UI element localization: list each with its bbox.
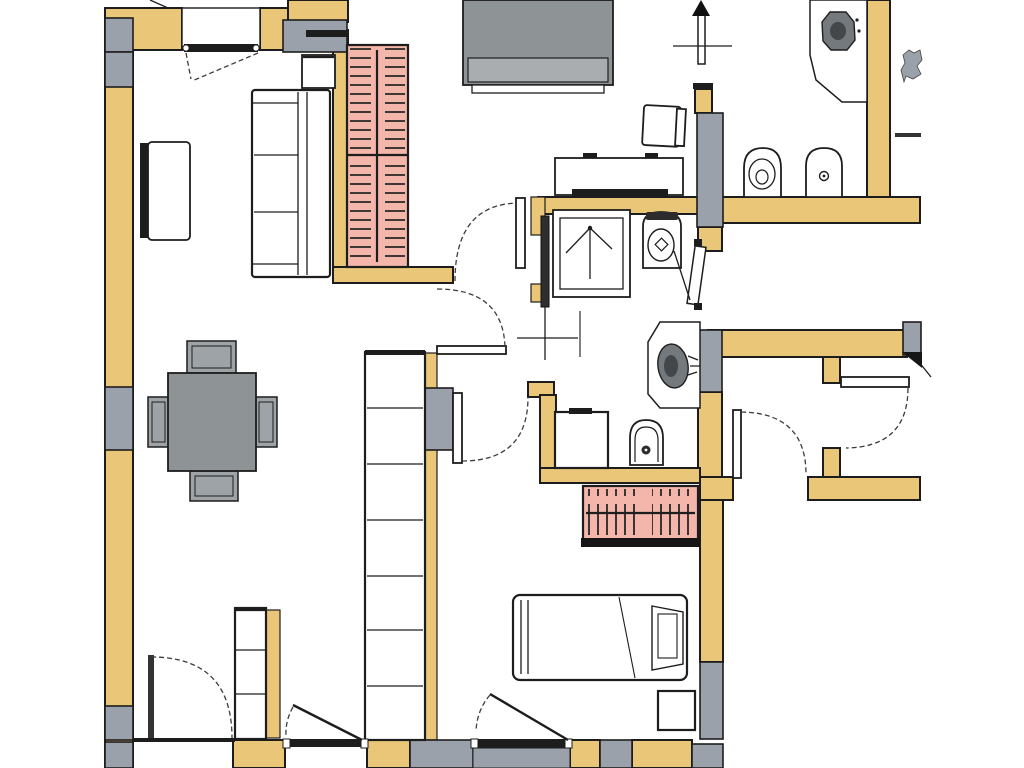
sideboard: [148, 142, 190, 240]
dining-chair-top: [187, 341, 236, 373]
bidet-drain-dot: [823, 175, 826, 178]
toilet-tank: [646, 212, 678, 220]
pier-hall: [423, 388, 453, 450]
sofa: [252, 90, 330, 277]
pier: [105, 18, 133, 52]
threshold-base: [473, 748, 570, 768]
single-bed: [513, 595, 687, 680]
threshold: [473, 739, 570, 748]
washbasin-bowl: [664, 355, 678, 377]
wall-bathroom-bottom: [700, 197, 920, 223]
large-sofa-seat-band: [468, 58, 608, 82]
pier: [105, 742, 133, 768]
washing-machine-controls: [569, 408, 592, 414]
pier: [105, 52, 133, 87]
door-swing-arc: [476, 695, 490, 731]
shower-head-dot: [588, 226, 592, 230]
pier-center-tall: [697, 113, 723, 227]
pier: [105, 387, 133, 450]
dining-chair-right: [255, 397, 277, 447]
wall-top-above-pier: [288, 0, 348, 22]
dining-table: [168, 373, 256, 471]
window-hinge: [183, 45, 189, 51]
wall-stub-b: [823, 448, 840, 478]
lintel-bar: [306, 30, 347, 37]
floor-plan-drawing: [0, 0, 1024, 768]
desk-object: [645, 153, 658, 158]
desk: [555, 153, 683, 197]
sideboard-back: [140, 143, 148, 238]
door-swing-arc: [846, 388, 908, 448]
bidet-icon: [630, 420, 663, 465]
wardrobe-hangers-left: [347, 45, 408, 267]
door-leaf-diagonal: [293, 705, 362, 740]
door-leaf-diagonal: [490, 694, 568, 740]
chair-seat: [148, 397, 169, 447]
wall-bottom-3: [570, 740, 600, 768]
threshold: [285, 739, 367, 747]
window-swing-dash: [192, 53, 258, 81]
door-swing-arc: [437, 289, 505, 347]
window-swing-dash: [186, 53, 191, 79]
wall-fixture-icon: [901, 50, 922, 82]
nightstand: [658, 691, 695, 730]
pier-bottom: [410, 740, 473, 768]
door-swing-arc: [741, 412, 806, 474]
door-hinge: [694, 303, 702, 310]
closet-body: [365, 352, 425, 740]
shower-tray: [553, 210, 630, 297]
wall-center-mid2: [698, 392, 722, 478]
desk-object: [583, 153, 597, 158]
wardrobe-hangers-bedroom: [581, 486, 700, 547]
pier-midright-end: [903, 322, 921, 355]
floor-plan-canvas: [0, 0, 1024, 768]
wall-center-top: [695, 89, 712, 113]
pier: [105, 706, 133, 740]
door-swing-arc: [462, 397, 528, 461]
pier-center: [698, 330, 722, 392]
shelf-unit: [235, 608, 266, 739]
closet-cap: [365, 350, 425, 355]
door-hinge: [694, 239, 702, 246]
small-bathroom: [555, 322, 700, 468]
shelf-body: [235, 608, 266, 739]
washbasin-bowl: [830, 22, 846, 40]
door-swing-arc: [455, 203, 517, 281]
door-swing-arc: [286, 707, 293, 737]
faucet-dot: [855, 18, 858, 21]
wall-bottom-1: [233, 740, 285, 768]
door-leaf-dark: [541, 216, 549, 307]
dining-chair-bottom: [190, 471, 238, 501]
closet-column: [365, 350, 425, 740]
door-jamb: [565, 739, 572, 748]
north-arrow-head-icon: [692, 0, 710, 16]
door-leaf: [437, 346, 506, 354]
wall-midright-horizontal: [708, 330, 907, 357]
wall-bedroom-right: [700, 478, 723, 662]
window-hinge: [253, 45, 259, 51]
faucet-dot: [857, 29, 860, 32]
living-area: [140, 45, 408, 277]
door-leaf-dark: [148, 655, 154, 740]
door-jamb: [361, 739, 368, 748]
pillow: [652, 606, 683, 670]
bedroom: [513, 486, 700, 730]
desk-edge-bar: [572, 189, 668, 197]
door-wedge: [902, 352, 922, 368]
top-right-bathroom: [744, 0, 922, 197]
door-swing-line: [674, 251, 690, 300]
threshold-line: [133, 738, 235, 742]
chair-back: [675, 109, 686, 146]
north-arrow-shaft: [698, 10, 705, 64]
washing-machine-icon: [555, 412, 608, 468]
toilet-drain: [756, 170, 768, 184]
pier-bottom-right: [692, 744, 723, 768]
wall-cabinet: [302, 55, 335, 88]
window-sill: [184, 44, 258, 52]
door-leaf: [841, 377, 909, 387]
wall-under-wardrobe: [333, 267, 453, 283]
wall-right-vertical: [867, 0, 890, 197]
shower-icon: [553, 210, 630, 297]
wall-smallbath-bottom: [540, 468, 700, 483]
dining-chair-left: [148, 397, 169, 447]
door-leaf: [687, 246, 706, 305]
door-leaf: [733, 410, 741, 478]
wall-stub-a: [823, 357, 840, 383]
study-room: [463, 0, 732, 197]
toilet-shower-room: [643, 212, 681, 268]
door-leaf: [453, 393, 462, 463]
door-jamb: [471, 739, 478, 748]
door-swing-line: [919, 362, 931, 377]
north-arrow: [673, 0, 732, 64]
pier-bedroom: [700, 662, 723, 739]
wall-midright-bottom-left: [700, 477, 733, 500]
wall-bottom-2: [367, 740, 410, 768]
door-leaf: [516, 198, 525, 268]
wall-midright-bottom: [808, 477, 920, 500]
desk-chair: [642, 105, 686, 147]
wall-bottom-4: [632, 740, 692, 768]
cropped-window-mark: [150, 0, 168, 8]
pier-bottom: [600, 740, 632, 768]
wall-shelf-strip: [266, 610, 280, 738]
wall-line: [895, 133, 921, 137]
wardrobe-base: [581, 538, 700, 547]
door-jamb: [283, 739, 290, 748]
window-opening: [182, 8, 260, 50]
large-gray-sofa: [463, 0, 613, 93]
large-sofa-front-edge: [472, 85, 604, 93]
sofa-outline: [252, 90, 330, 277]
chair-seat: [255, 397, 277, 447]
bidet-drain-dot: [645, 449, 648, 452]
door-swing-arc: [151, 657, 232, 738]
dining-area: [148, 341, 277, 501]
